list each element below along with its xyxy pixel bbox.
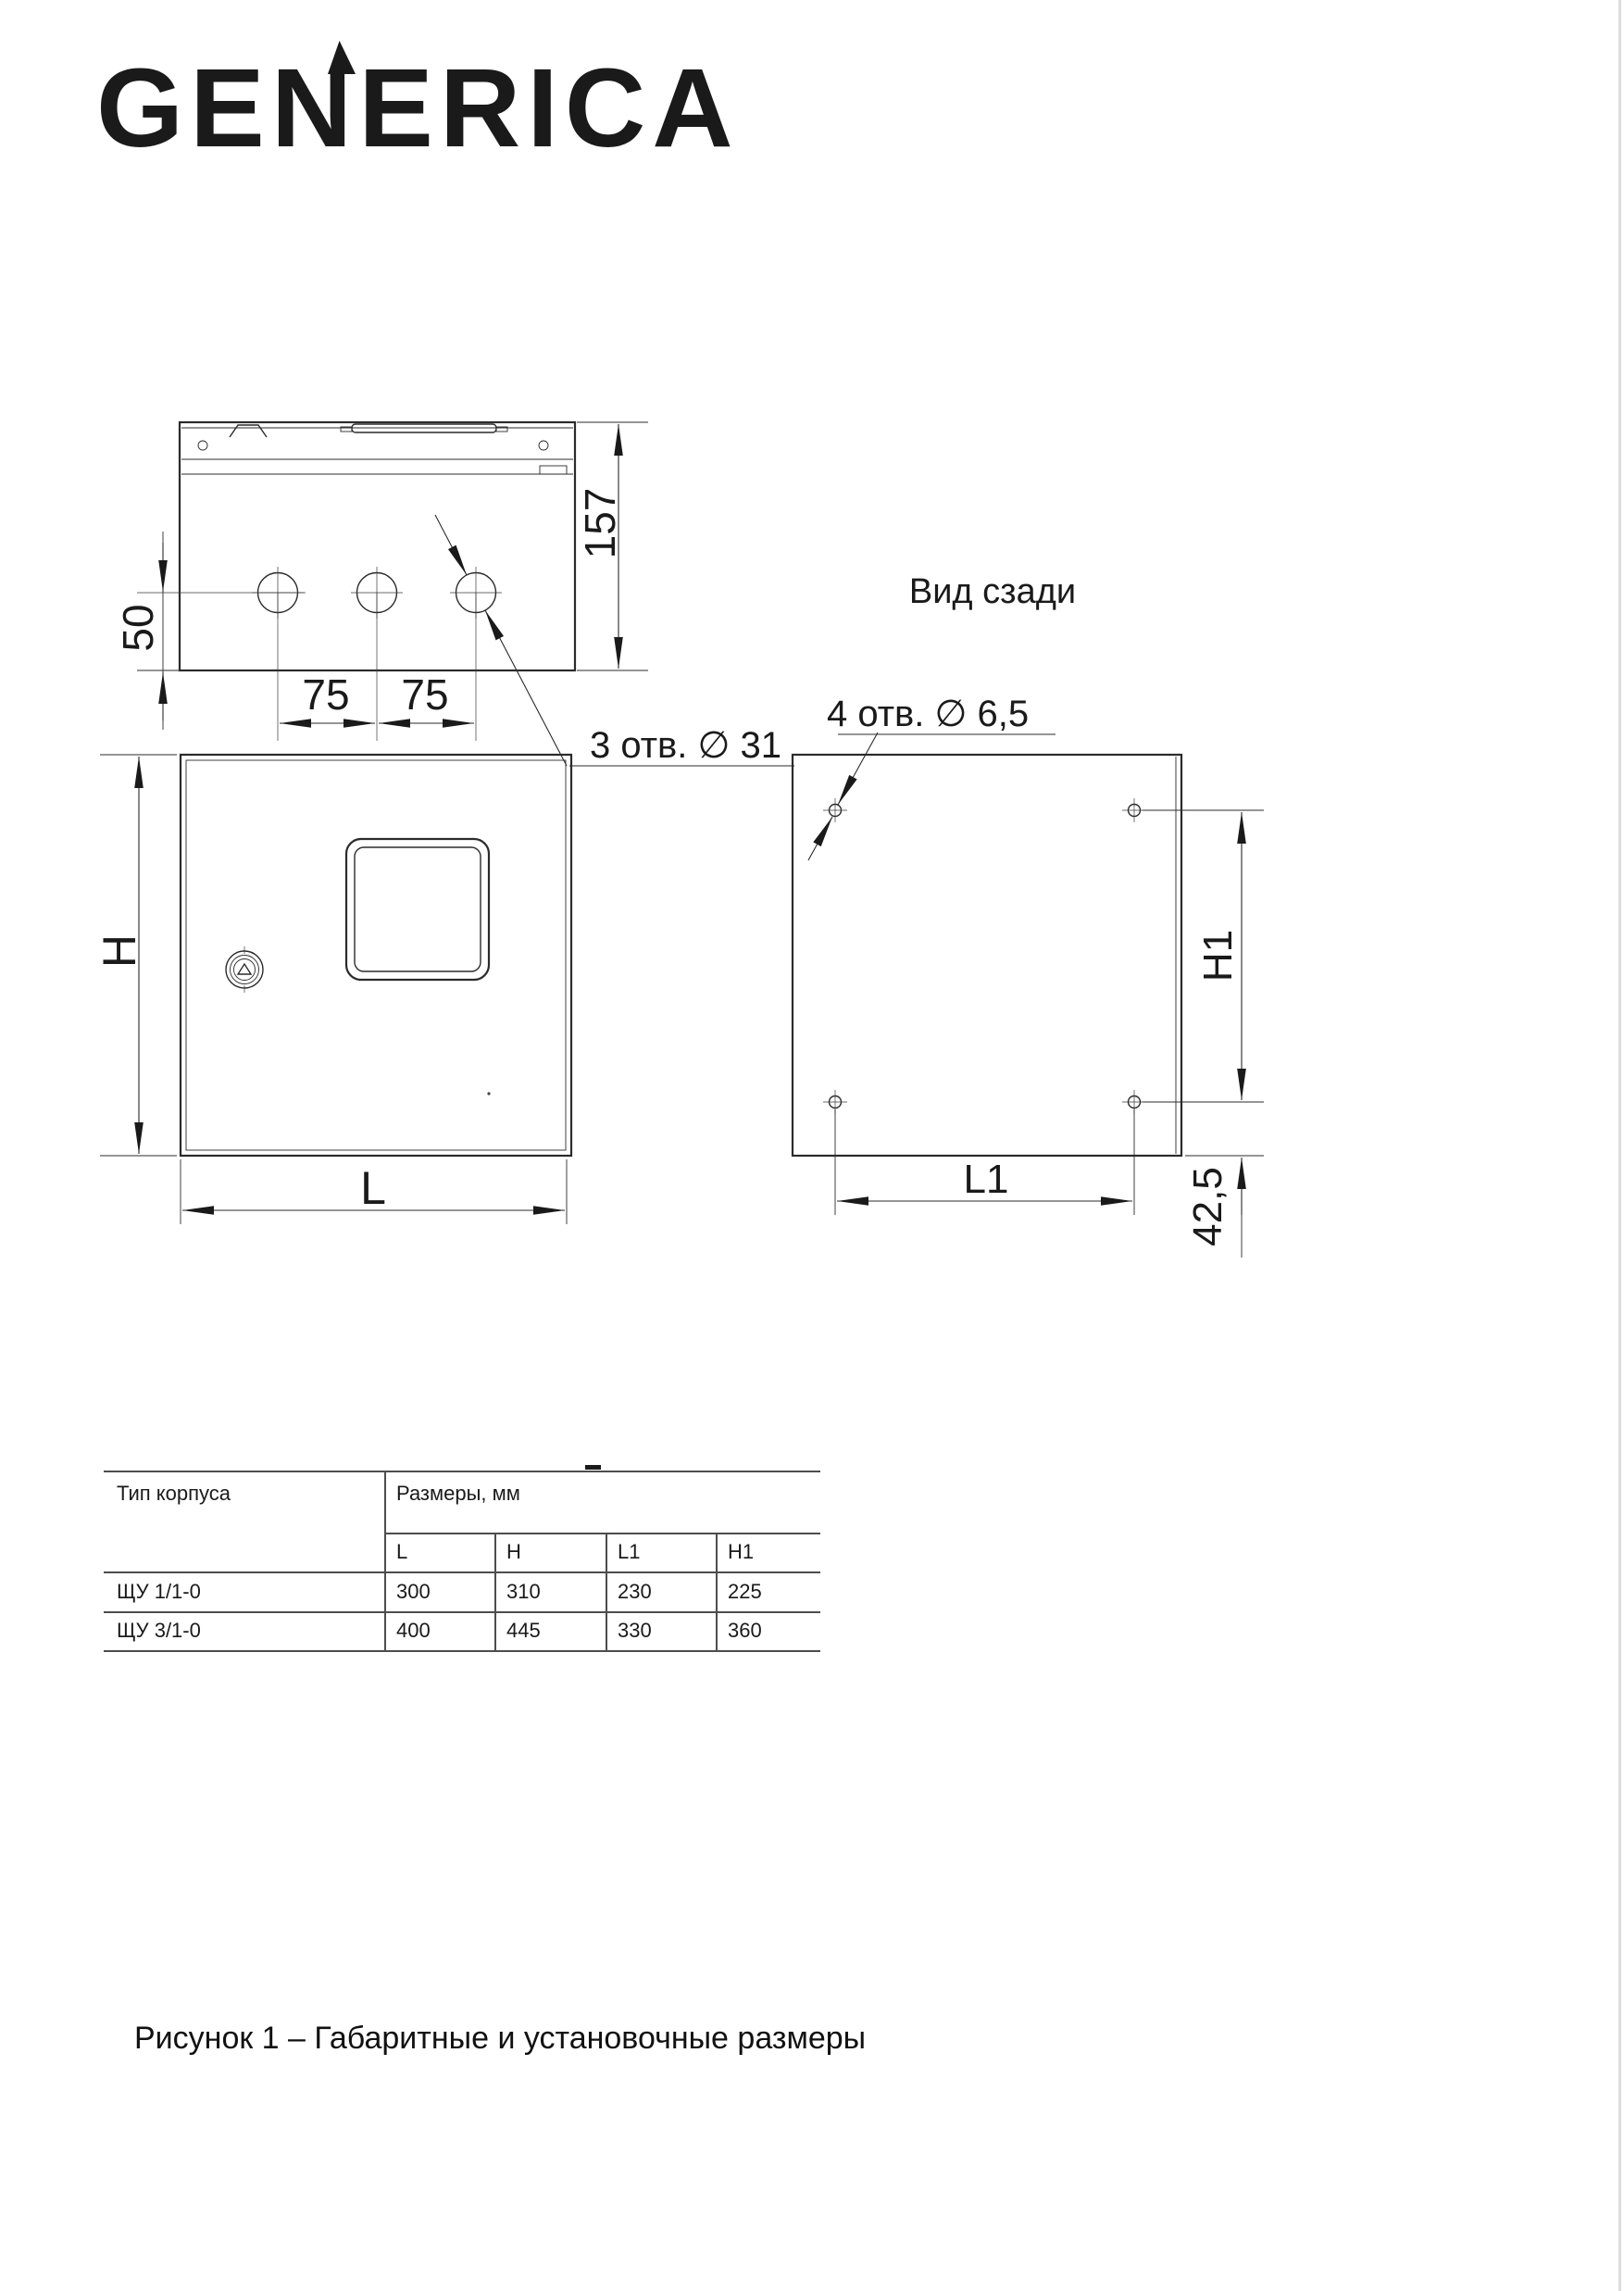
table-rule <box>716 1533 718 1650</box>
top-holes-note: 3 отв. ∅ 31 <box>590 725 781 766</box>
table-subheader-H: H <box>506 1541 521 1563</box>
dim-height-label: H <box>94 934 145 968</box>
table-subheader-L: L <box>396 1541 407 1563</box>
dim-H1: H1 <box>1143 810 1264 1102</box>
table-row-value: 225 <box>728 1581 762 1603</box>
dim-depth-label: 157 <box>576 488 624 559</box>
speck-artifact <box>487 1092 490 1095</box>
page-edge-line <box>1618 0 1621 2291</box>
table-row-value: 310 <box>506 1581 541 1603</box>
rear-view-title: Вид сзади <box>909 572 1076 611</box>
table-row-value: 400 <box>396 1620 431 1642</box>
table-rule <box>104 1471 820 1472</box>
table-header-dims: Размеры, мм <box>396 1483 520 1505</box>
dimension-drawing: 157 50 75 75 <box>0 0 1624 2291</box>
dim-rear-height-label: H1 <box>1195 930 1241 982</box>
table-header-type: Тип корпуса <box>117 1483 231 1505</box>
document-page: GENERICA <box>0 0 1624 2291</box>
dim-spacing-right-label: 75 <box>401 670 448 719</box>
door-edge-tab <box>230 425 267 437</box>
screw-icon <box>198 441 207 450</box>
table-subheader-L1: L1 <box>618 1541 640 1563</box>
latch-detail <box>540 466 567 474</box>
table-row-type: ЩУ 3/1-0 <box>117 1620 201 1642</box>
table-row-value: 230 <box>618 1581 652 1603</box>
table-row-value: 445 <box>506 1620 541 1642</box>
table-rule <box>104 1650 820 1652</box>
dimensions-table: Тип корпуса Размеры, мм L H L1 H1 ЩУ 1/1… <box>104 1471 820 1652</box>
handle-bar <box>352 424 496 432</box>
table-rule <box>494 1533 496 1650</box>
rear-view-drawing: Вид сзади 4 <box>793 572 1264 1258</box>
top-view-drawing: 157 50 75 75 <box>114 422 794 766</box>
table-row-value: 330 <box>618 1620 652 1642</box>
table-rule <box>606 1533 607 1650</box>
leader-4-holes: 4 отв. ∅ 6,5 <box>808 694 1056 860</box>
dim-H: H <box>94 755 177 1156</box>
table-row-type: ЩУ 1/1-0 <box>117 1581 201 1603</box>
table-row-value: 300 <box>396 1581 431 1603</box>
print-artifact <box>585 1465 601 1470</box>
front-view-drawing: H L <box>94 755 571 1224</box>
table-rule <box>104 1571 820 1573</box>
table-subheader-H1: H1 <box>728 1541 754 1563</box>
front-view-outline <box>181 755 571 1156</box>
door-lock <box>226 946 263 993</box>
door-window <box>346 839 489 980</box>
dim-rear-width-label: L1 <box>964 1157 1009 1202</box>
rear-holes-note: 4 отв. ∅ 6,5 <box>827 694 1029 734</box>
table-rule <box>384 1471 386 1650</box>
dim-spacing-left-label: 75 <box>302 670 349 719</box>
dim-L1: L1 <box>835 1109 1134 1215</box>
dim-hole-offset-label: 50 <box>114 604 162 651</box>
dim-42-5: 42,5 <box>1185 1156 1264 1258</box>
dim-75-pair: 75 75 <box>278 593 476 741</box>
rear-view-outline <box>793 755 1181 1156</box>
mounting-holes <box>823 798 1146 1114</box>
dim-L: L <box>181 1159 567 1224</box>
screw-icon <box>539 441 548 450</box>
figure-caption: Рисунок 1 – Габаритные и установочные ра… <box>134 2021 866 2057</box>
table-rule <box>104 1611 820 1613</box>
dim-width-label: L <box>360 1162 386 1214</box>
dim-157: 157 <box>576 422 648 670</box>
dim-bottom-offset-label: 42,5 <box>1185 1167 1230 1246</box>
dim-50: 50 <box>114 532 306 730</box>
table-row-value: 360 <box>728 1620 762 1642</box>
table-rule <box>384 1533 820 1534</box>
